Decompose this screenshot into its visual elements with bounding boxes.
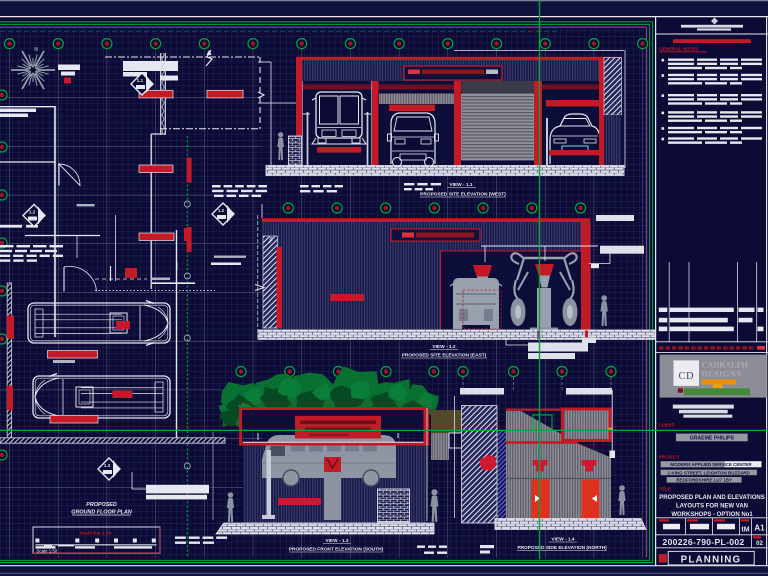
svg-text:VIEW - 1.2: VIEW - 1.2: [432, 344, 456, 350]
svg-text:N: N: [34, 47, 38, 53]
svg-text:BEDFORDSHIRE LU7 1BY: BEDFORDSHIRE LU7 1BY: [676, 478, 732, 483]
svg-text:PROPOSED: PROPOSED: [86, 502, 117, 508]
svg-text:PROPOSED FRONT ELEVATION (SOUT: PROPOSED FRONT ELEVATION (SOUTH): [289, 547, 384, 553]
svg-text:TITLE:: TITLE:: [659, 486, 672, 491]
svg-text:1.2: 1.2: [29, 210, 36, 215]
svg-text:Scale Bar 1:50: Scale Bar 1:50: [80, 531, 112, 536]
svg-text:PROPOSED SITE ELEVATION (WEST): PROPOSED SITE ELEVATION (WEST): [420, 192, 506, 198]
svg-text:PLANNING: PLANNING: [681, 554, 742, 565]
svg-text:PROPOSED SITE ELEVATION (EAST): PROPOSED SITE ELEVATION (EAST): [402, 353, 487, 359]
svg-text:1.1: 1.1: [137, 78, 144, 83]
svg-text:PROJECT:: PROJECT:: [659, 454, 680, 459]
svg-text:CD: CD: [679, 371, 695, 382]
svg-text:200226-790-PL-002: 200226-790-PL-002: [662, 537, 744, 547]
svg-text:VIEW - 1.1: VIEW - 1.1: [449, 182, 473, 188]
svg-text:MODERN APPLIED SERVICE CENTER: MODERN APPLIED SERVICE CENTER: [670, 462, 752, 467]
svg-text:A1: A1: [754, 524, 765, 533]
svg-text:GRAEME PHILIPS: GRAEME PHILIPS: [690, 436, 735, 442]
svg-text:VIEW - 1.4: VIEW - 1.4: [551, 537, 575, 543]
svg-text:1.3: 1.3: [104, 463, 111, 468]
svg-text:PROPOSED SIDE ELEVATION (NORTH: PROPOSED SIDE ELEVATION (NORTH): [517, 545, 607, 551]
svg-text:02: 02: [756, 541, 763, 547]
svg-text:WORKSHOPS - OPTION No1: WORKSHOPS - OPTION No1: [671, 512, 753, 518]
svg-text:1.2: 1.2: [218, 208, 225, 213]
svg-text:Scale 1:50: Scale 1:50: [37, 548, 58, 553]
svg-text:VIEW - 1.3: VIEW - 1.3: [325, 538, 349, 544]
svg-text:CLIENT:: CLIENT:: [659, 422, 675, 427]
svg-text:PROPOSED PLAN AND ELEVATIONS: PROPOSED PLAN AND ELEVATIONS: [659, 495, 765, 501]
svg-text:1 KING STREET, LEIGHTON BUZZAR: 1 KING STREET, LEIGHTON BUZZARD: [668, 470, 751, 475]
svg-text:CADRALPH: CADRALPH: [702, 360, 749, 369]
svg-text:tM: tM: [741, 527, 749, 534]
svg-text:GROUND FLOOR PLAN: GROUND FLOOR PLAN: [71, 510, 132, 516]
svg-text:LAYOUTS FOR NEW VAN: LAYOUTS FOR NEW VAN: [676, 504, 748, 510]
svg-text:GENERAL NOTES: GENERAL NOTES: [659, 46, 698, 51]
svg-text:DESIGNS: DESIGNS: [702, 369, 742, 378]
